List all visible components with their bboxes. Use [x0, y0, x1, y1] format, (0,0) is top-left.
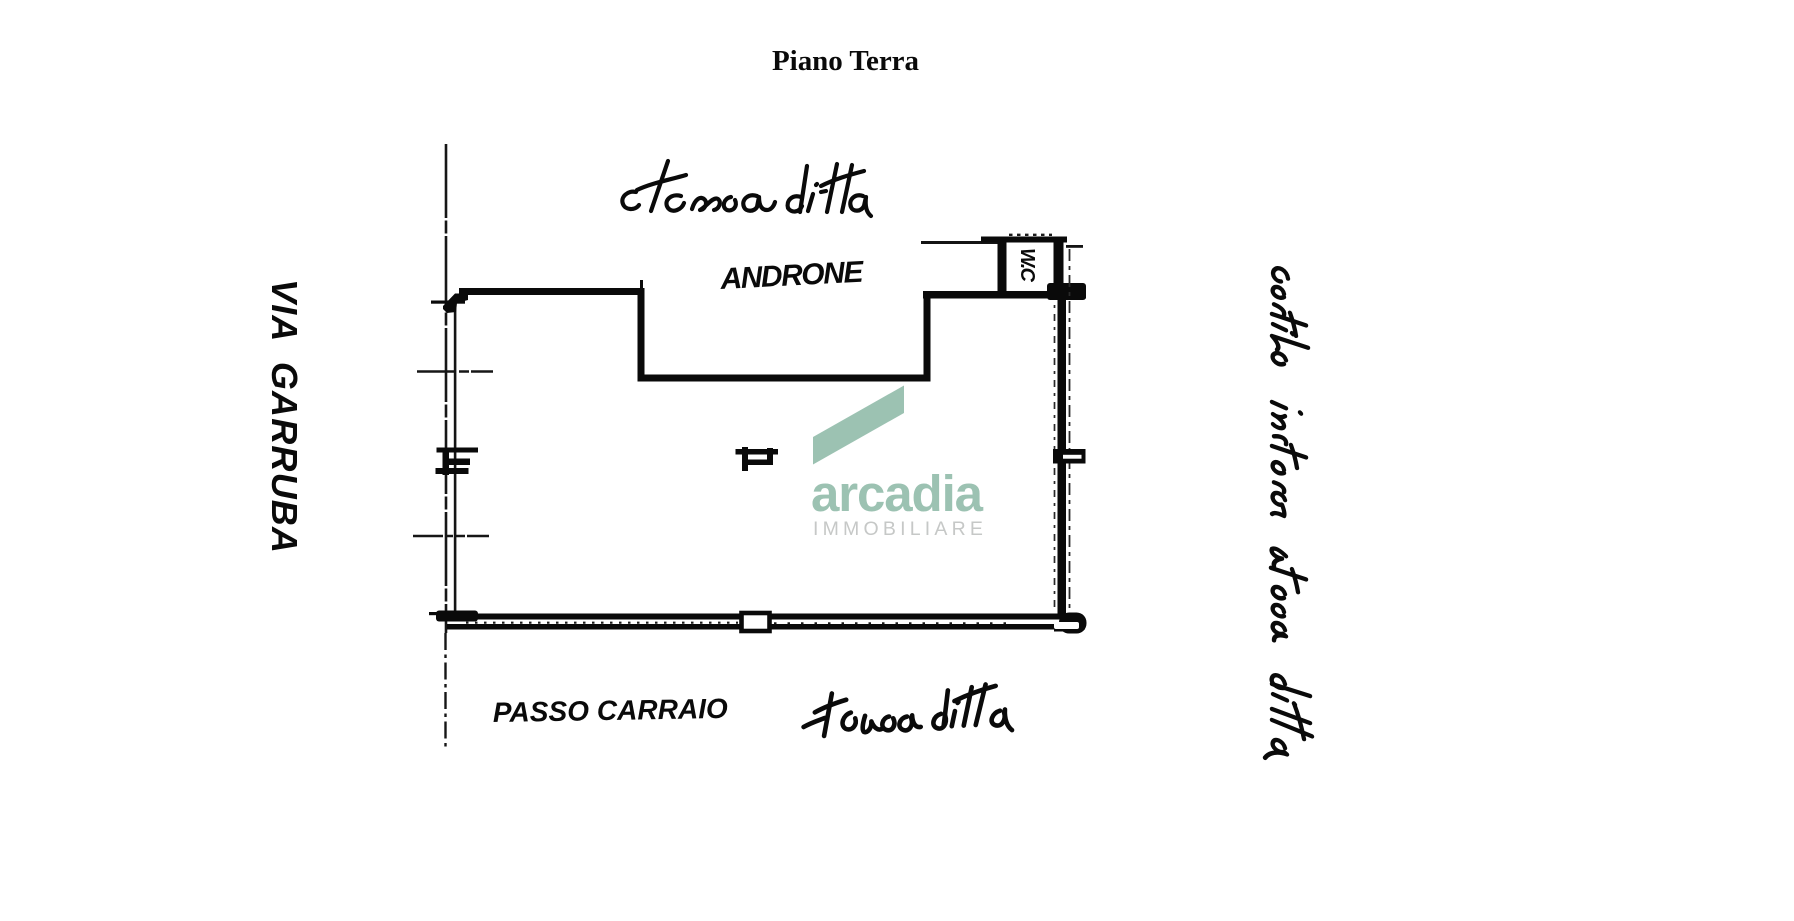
svg-text:Piano Terra: Piano Terra	[772, 45, 920, 77]
svg-text:PASSO CARRAIO: PASSO CARRAIO	[493, 693, 729, 728]
svg-text:W.C: W.C	[1016, 248, 1038, 283]
svg-text:VIA GARRUBA: VIA GARRUBA	[264, 279, 305, 556]
svg-text:arcadia: arcadia	[811, 465, 984, 522]
svg-text:IMMOBILIARE: IMMOBILIARE	[813, 518, 987, 540]
